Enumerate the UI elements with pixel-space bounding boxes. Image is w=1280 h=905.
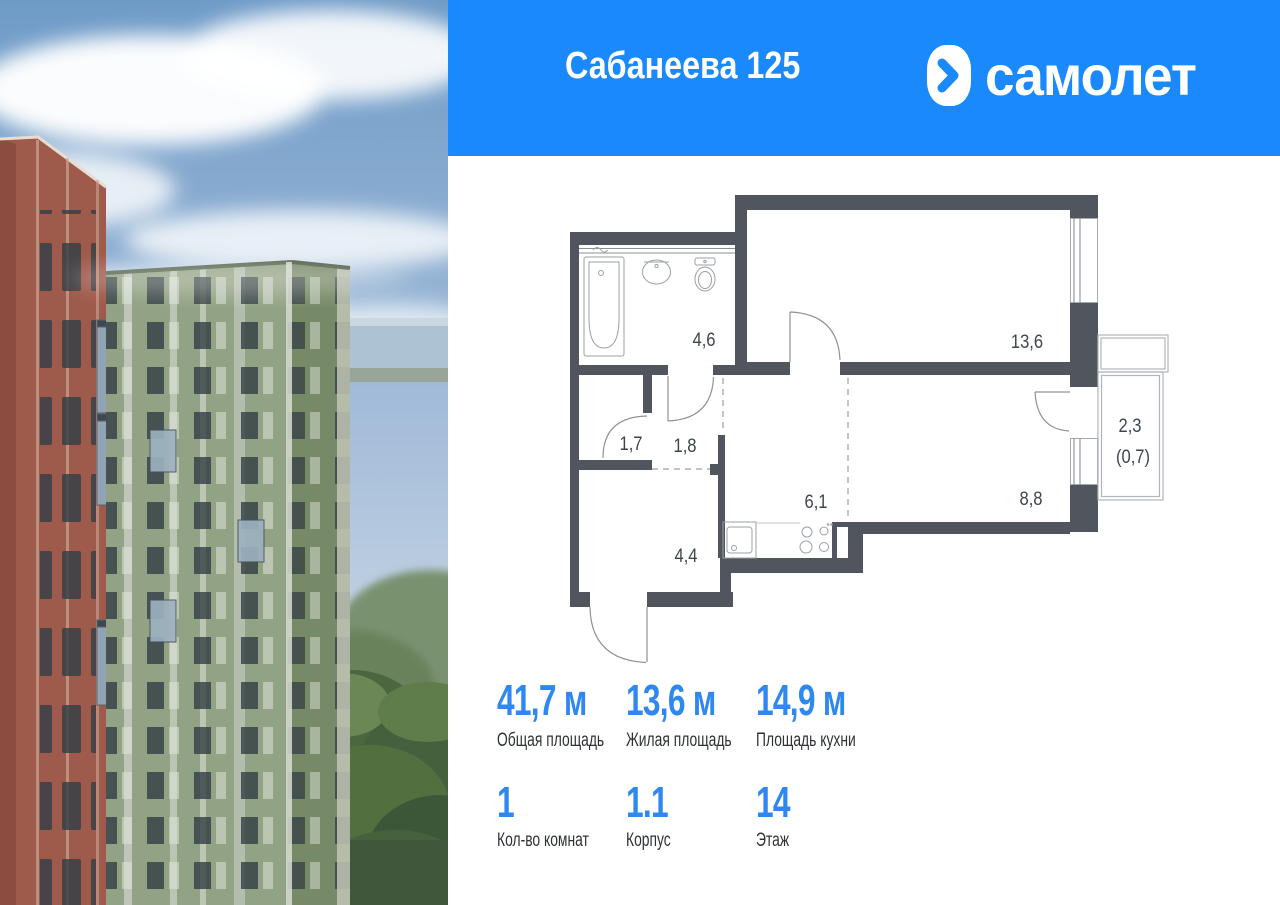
- stat-rooms-label: Кол-во комнат: [497, 831, 623, 851]
- stat-kitchen-area-value: 14,9 м: [756, 679, 846, 723]
- brand-name: самолет: [985, 45, 1196, 106]
- window-living-room: [1071, 218, 1098, 303]
- floor-plan: 4,6 13,6 1,7 1,8 6,1 8,8 4,4 2,3 (0,7): [560, 180, 1180, 680]
- room-label-bathroom: 4,6: [692, 329, 715, 351]
- page-title: Сабанеева 125: [565, 45, 800, 88]
- room-label-balcony: 2,3: [1118, 415, 1141, 437]
- room-label-hallway: 4,4: [674, 545, 697, 567]
- kitchen-sink: [723, 522, 756, 558]
- stat-kitchen-area-label: Площадь кухни: [756, 731, 893, 751]
- stat-floor-label: Этаж: [756, 831, 801, 851]
- samolet-logo-icon: [927, 45, 971, 106]
- green-tower: [286, 262, 350, 905]
- stat-total-area-label: Общая площадь: [497, 731, 644, 751]
- sink: [643, 260, 671, 284]
- stat-floor-value: 14: [756, 781, 790, 825]
- listing-card: Сабанеева 125 самолет: [0, 0, 1280, 905]
- stat-rooms-value: 1: [497, 781, 514, 825]
- room-label-hall: 1,8: [673, 435, 696, 457]
- bathroom-shelf-line: [579, 249, 735, 254]
- room-label-room: 8,8: [1019, 488, 1042, 510]
- room-label-wardrobe: 1,7: [619, 433, 642, 455]
- room-label-balcony-reduced: (0,7): [1116, 446, 1150, 468]
- toilet: [695, 258, 715, 291]
- stat-building: 1.1: [626, 781, 684, 825]
- wall-notch: [837, 527, 848, 558]
- stat-floor: 14: [756, 781, 803, 825]
- stat-rooms: 1: [497, 781, 520, 825]
- stat-living-area-label: Жилая площадь: [626, 731, 771, 751]
- brand-logo: самолет: [927, 45, 1207, 106]
- stat-total-area: 41,7 м: [497, 679, 621, 723]
- stove: [756, 523, 832, 553]
- green-building: [106, 262, 292, 905]
- stat-building-label: Корпус: [626, 831, 687, 851]
- haze-cloud: [70, 262, 410, 294]
- room-label-kitchen: 6,1: [804, 491, 827, 513]
- bathtub: [584, 248, 624, 357]
- stat-total-area-value: 41,7 м: [497, 679, 587, 723]
- header-banner: Сабанеева 125 самолет: [448, 0, 1280, 156]
- stat-kitchen-area: 14,9 м: [756, 679, 880, 723]
- building-photo: [0, 0, 448, 905]
- stat-living-area: 13,6 м: [626, 679, 750, 723]
- walls: [570, 195, 1098, 607]
- stat-building-value: 1.1: [626, 781, 668, 825]
- building-photo-art: [0, 0, 448, 905]
- window-room: [1071, 438, 1098, 485]
- room-label-living: 13,6: [1011, 331, 1043, 353]
- stat-living-area-value: 13,6 м: [626, 679, 716, 723]
